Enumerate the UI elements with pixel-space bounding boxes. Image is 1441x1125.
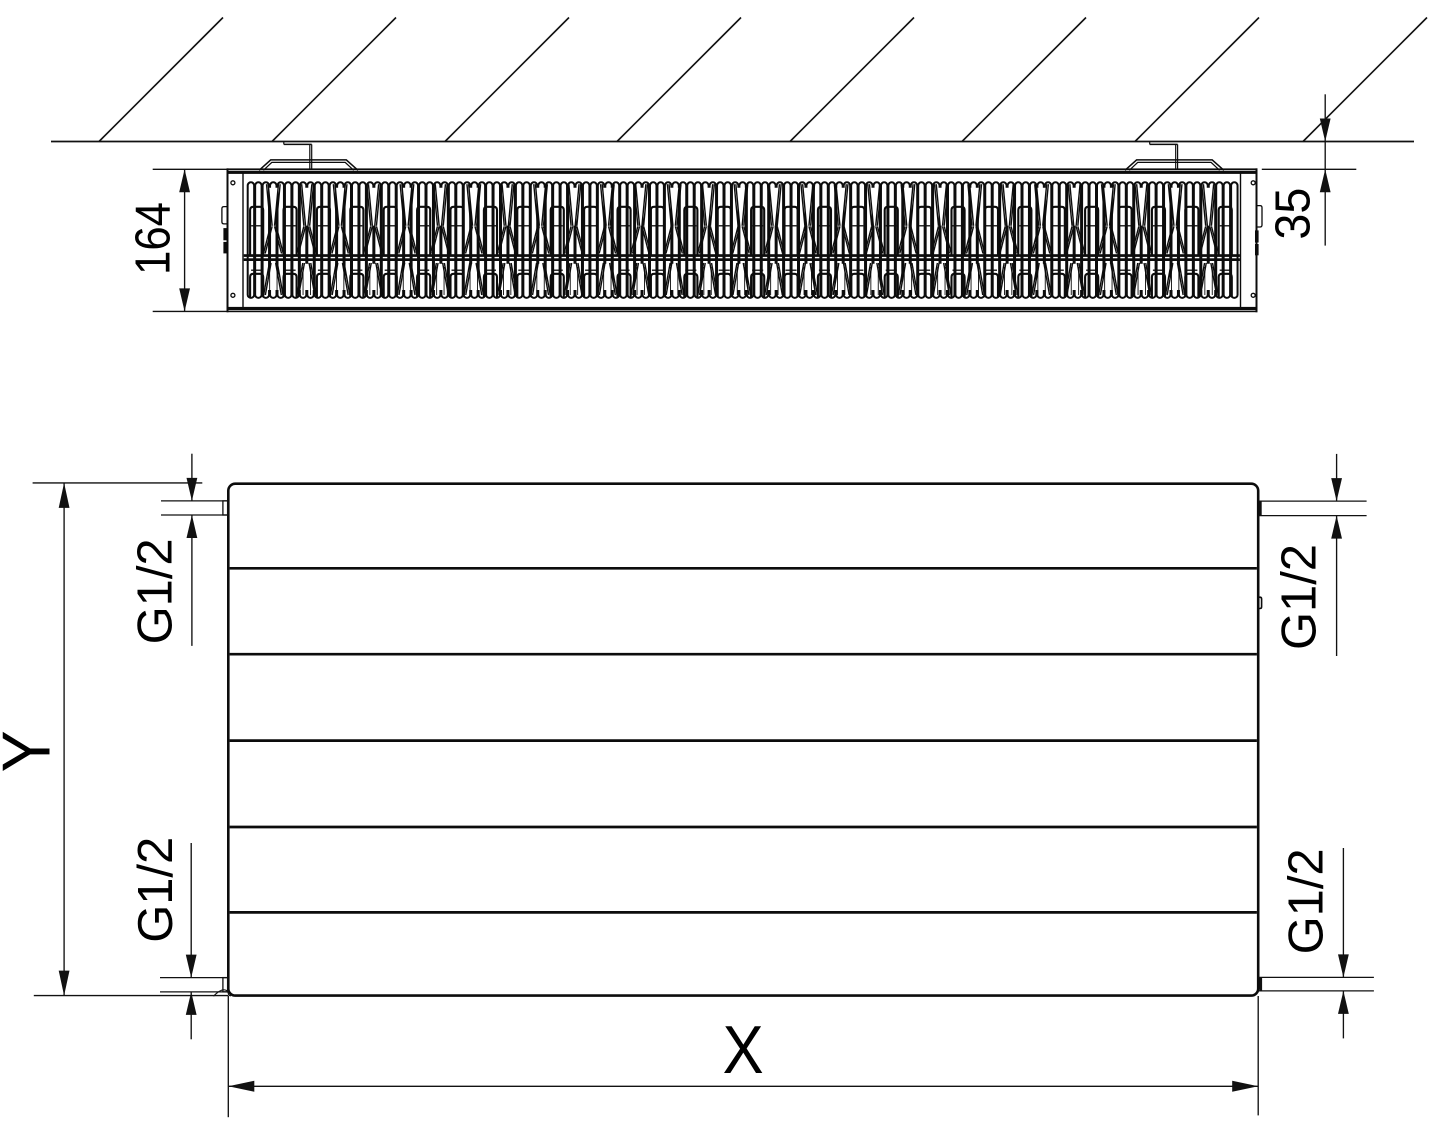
svg-text:X: X — [723, 1012, 764, 1088]
svg-text:164: 164 — [126, 202, 180, 275]
svg-text:G1/2: G1/2 — [129, 837, 183, 943]
svg-text:G1/2: G1/2 — [128, 538, 182, 644]
svg-text:35: 35 — [1267, 188, 1321, 240]
svg-text:G1/2: G1/2 — [1273, 544, 1327, 650]
svg-text:Y: Y — [0, 730, 65, 772]
svg-text:G1/2: G1/2 — [1280, 848, 1334, 954]
